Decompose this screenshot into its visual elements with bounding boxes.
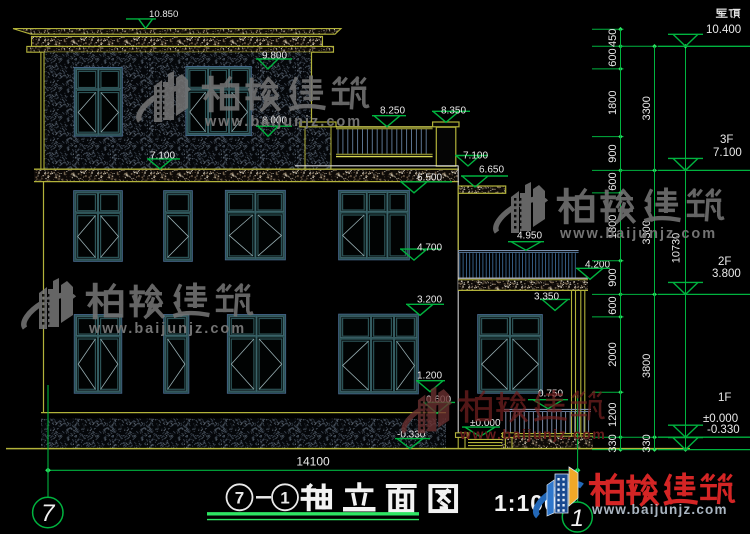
svg-text:2F: 2F (718, 256, 731, 268)
svg-text:600: 600 (607, 172, 619, 190)
svg-text:www.baijunjz.com: www.baijunjz.com (559, 226, 717, 242)
svg-text:1800: 1800 (607, 90, 619, 114)
svg-text:330: 330 (607, 434, 619, 452)
svg-text:6.500: 6.500 (417, 173, 442, 184)
svg-text:10.400: 10.400 (706, 24, 741, 36)
svg-text:www.baijunjz.com: www.baijunjz.com (88, 321, 246, 337)
svg-text:450: 450 (607, 29, 619, 47)
svg-text:-0.330: -0.330 (707, 424, 740, 436)
svg-text:1F: 1F (718, 392, 731, 404)
svg-text:7.100: 7.100 (463, 151, 488, 162)
svg-text:900: 900 (607, 144, 619, 162)
svg-text:1.200: 1.200 (417, 371, 442, 382)
svg-text:www.baijunjz.com: www.baijunjz.com (459, 426, 606, 442)
svg-text:4.950: 4.950 (517, 231, 542, 242)
svg-text:www.baijunjz.com: www.baijunjz.com (591, 502, 728, 517)
svg-text:600: 600 (607, 296, 619, 314)
svg-text:7: 7 (235, 489, 244, 508)
svg-text:3300: 3300 (641, 96, 653, 120)
svg-text:3F: 3F (720, 134, 733, 146)
svg-text:3.200: 3.200 (417, 295, 442, 306)
svg-text:900: 900 (607, 268, 619, 286)
svg-text:2000: 2000 (607, 342, 619, 366)
svg-text:1200: 1200 (607, 402, 619, 426)
svg-text:7.100: 7.100 (150, 151, 175, 162)
svg-text:9.800: 9.800 (262, 51, 287, 62)
svg-text:www.baijunjz.com: www.baijunjz.com (204, 114, 362, 130)
svg-text:1: 1 (280, 489, 289, 508)
svg-text:600: 600 (607, 48, 619, 66)
svg-text:3.800: 3.800 (712, 268, 741, 280)
svg-text:6.650: 6.650 (479, 165, 504, 176)
svg-text:330: 330 (641, 434, 653, 452)
svg-text:3.350: 3.350 (534, 292, 559, 303)
svg-text:14100: 14100 (296, 455, 330, 469)
svg-text:10.850: 10.850 (149, 9, 178, 20)
svg-text:8.350: 8.350 (441, 106, 466, 117)
svg-text:7.100: 7.100 (713, 147, 742, 159)
svg-text:7: 7 (41, 500, 56, 527)
svg-text:1: 1 (571, 505, 584, 532)
svg-text:4.700: 4.700 (417, 243, 442, 254)
svg-text:8.250: 8.250 (380, 106, 405, 117)
svg-text:3800: 3800 (641, 354, 653, 378)
